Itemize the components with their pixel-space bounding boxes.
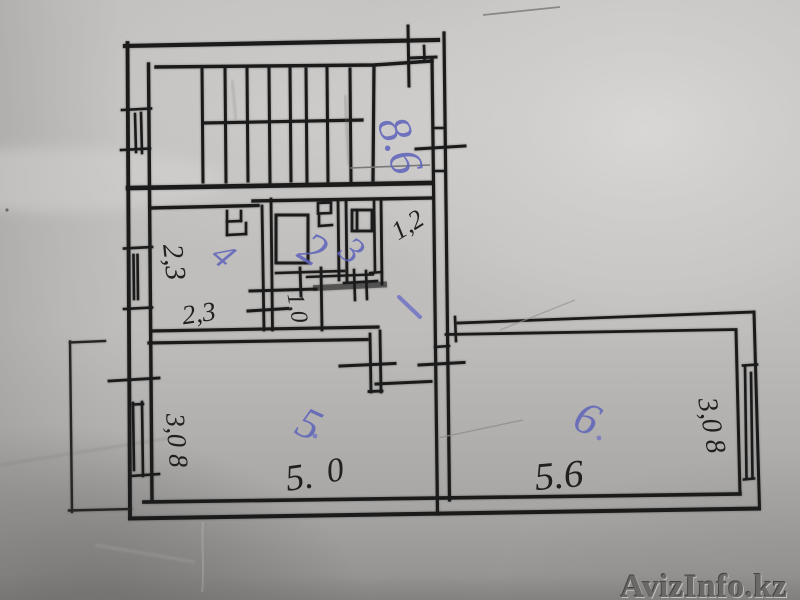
svg-text:2,3: 2,3 — [180, 296, 218, 330]
svg-text:2,3: 2,3 — [156, 242, 192, 281]
svg-text:AvizInfo.kz: AvizInfo.kz — [621, 569, 788, 600]
svg-text:5.6: 5.6 — [533, 452, 586, 499]
svg-text:3,0 8: 3,0 8 — [160, 411, 194, 468]
svg-text:5.: 5. — [283, 455, 316, 499]
svg-text:1,0: 1,0 — [281, 291, 312, 325]
